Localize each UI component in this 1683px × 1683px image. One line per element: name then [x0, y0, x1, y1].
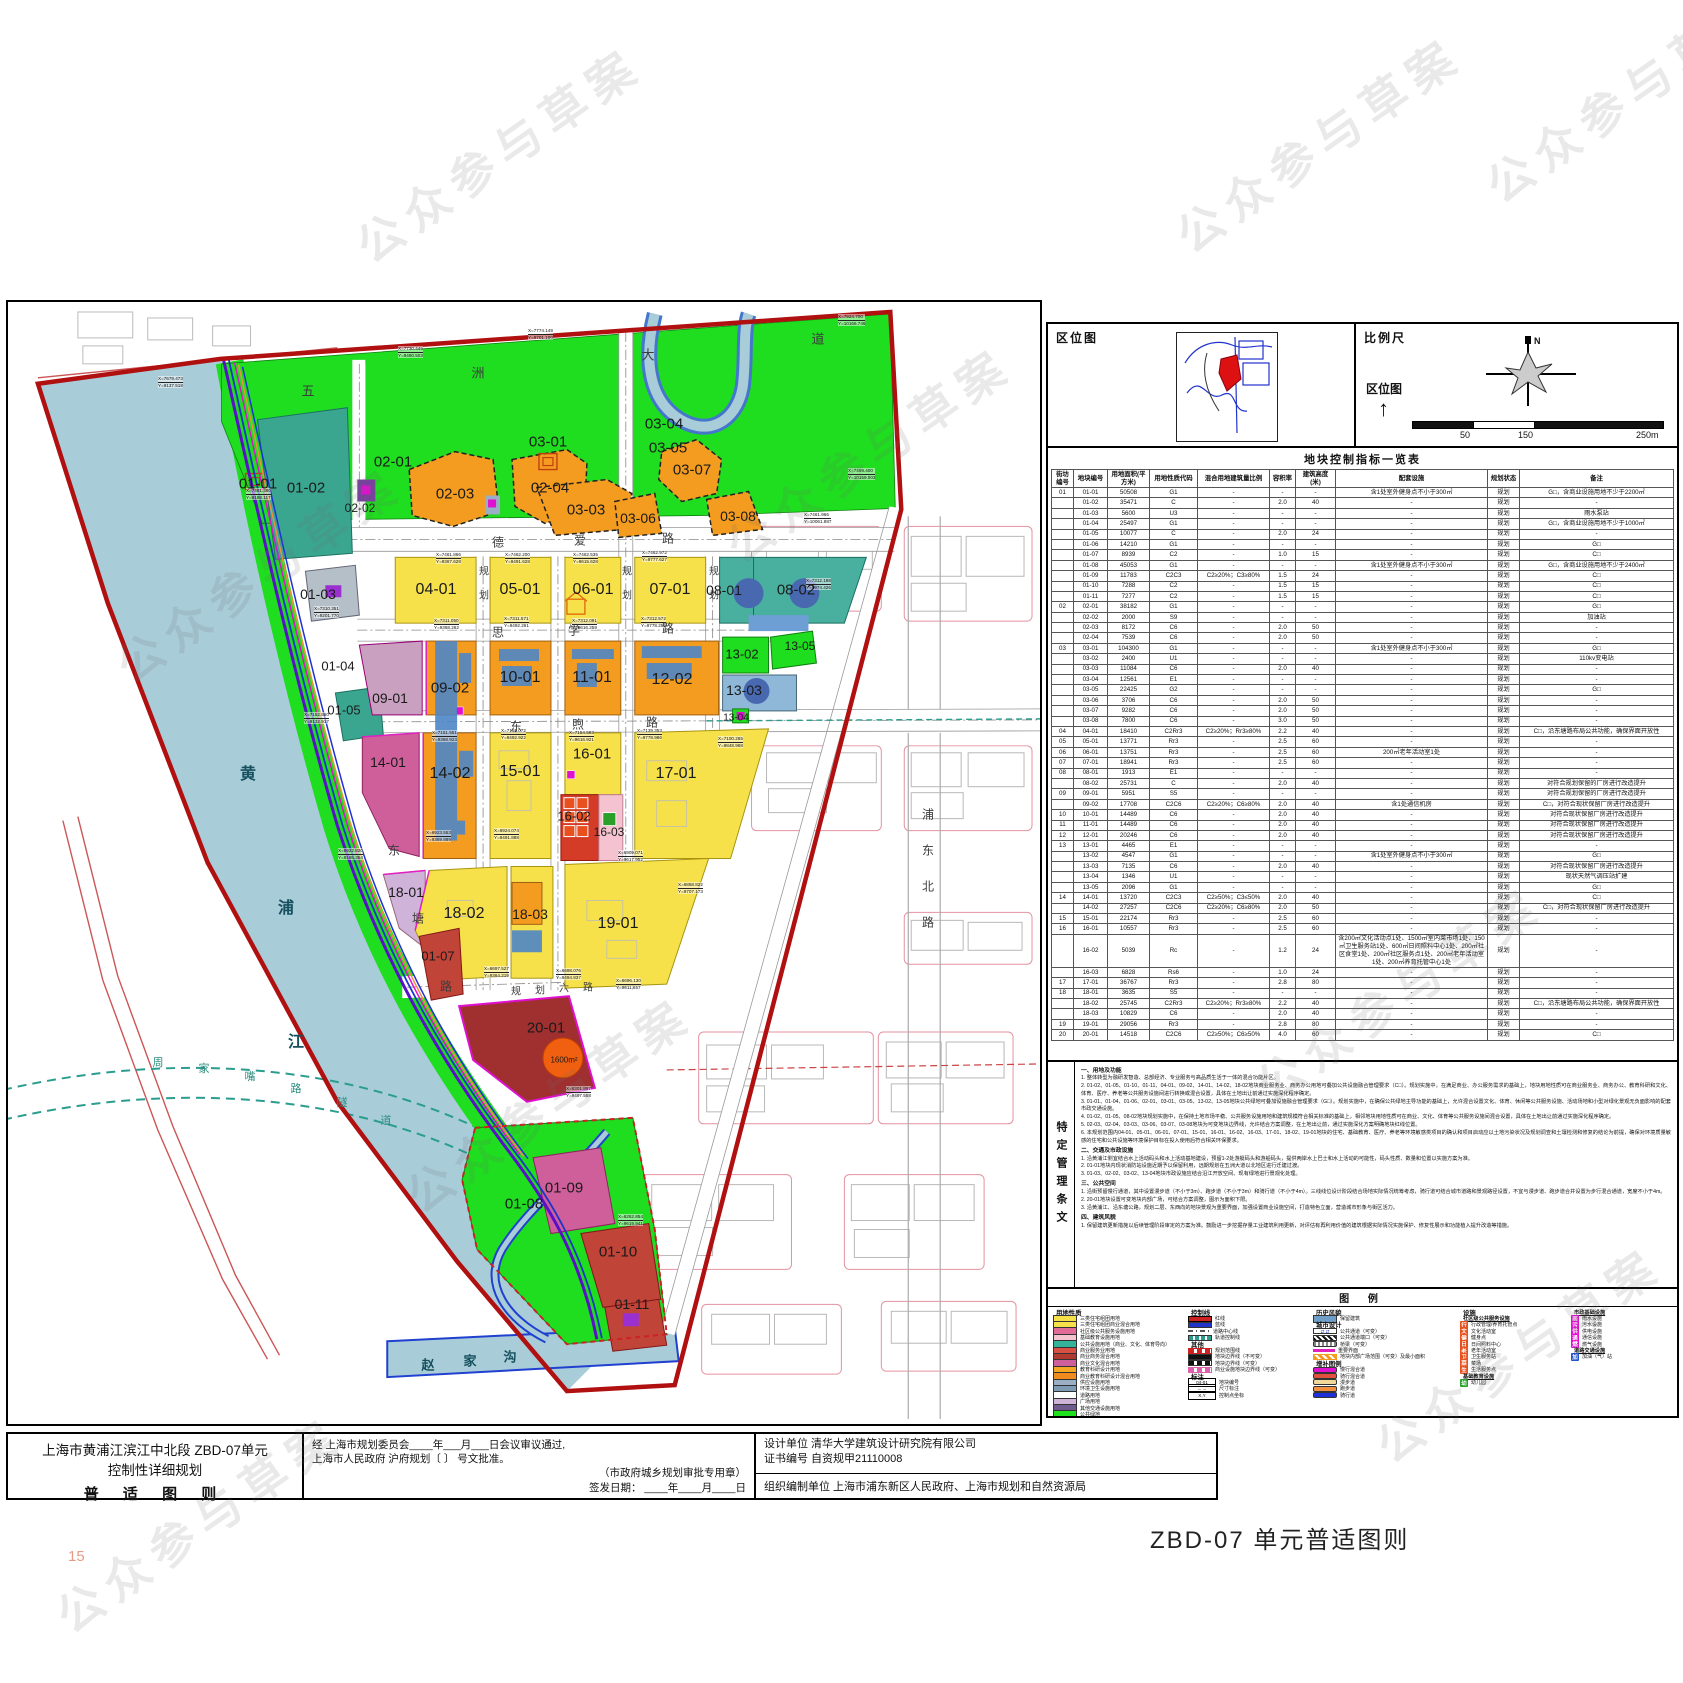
header-panels: 区位图 比例尺 N: [1046, 322, 1679, 448]
map-label: 20-01: [527, 1020, 565, 1037]
provisions-side-label: 特定管理条文: [1048, 1062, 1075, 1287]
special-provisions-section: 特定管理条文 一、用地及功能 1. 整体转型为融研发智造、总部经济、专业服务与高…: [1046, 1060, 1679, 1289]
map-label: 北: [922, 878, 934, 895]
legend-chip: [1313, 1341, 1337, 1347]
coordinate-label: X=6923.553Y=9369.889: [426, 830, 451, 842]
coordinate-label: X=6909.071Y=9617.952: [618, 850, 643, 862]
table-row: 2020-0114518 C2C6C2≥50%；C6≥50%4.0 60-规划 …: [1052, 1030, 1674, 1040]
location-minimap: [1176, 332, 1278, 442]
legend-chip: [1188, 1348, 1212, 1354]
coordinate-label: X=6698.076Y=9494.837: [556, 968, 581, 980]
coordinate-label: X=7311.571Y=9492.261: [504, 616, 529, 628]
right-column: 区位图 比例尺 N: [1046, 322, 1679, 1418]
map-label: 洲: [471, 363, 484, 382]
scale-tick: 250m: [1636, 430, 1659, 440]
map-label: 黄: [240, 760, 256, 784]
map-label: 东: [510, 718, 522, 735]
map-label: 01-03: [300, 586, 336, 602]
map-label: 路: [440, 978, 452, 995]
map-label: 路: [922, 914, 934, 931]
map-label: 爱: [574, 532, 586, 549]
table-row: 01-0911783 C2C3C2≥20%；C3≥80%1.5 24-规划 C□: [1052, 571, 1674, 581]
red-dashed-line: [667, 1064, 1040, 1070]
map-label: 01-09: [545, 1180, 583, 1197]
table-row: 0404-0118410 C2Rr3C2≥20%；Rr3≥80%2.2 40-规…: [1052, 726, 1674, 736]
map-label: 东: [922, 842, 934, 859]
table-row: 0101-0150508 G1-- -含1处室外健身点不小于300㎡规划 G□，…: [1052, 488, 1674, 498]
coordinate-label: X=6696.130Y=9611.657: [616, 978, 641, 990]
map-label: 16-03: [594, 825, 625, 839]
legend-chip: [1313, 1349, 1335, 1352]
map-label: 路: [662, 620, 674, 637]
table-row: 01-078939 C2-1.0 15-规划 C□: [1052, 550, 1674, 560]
coordinate-label: X=7679.473Y=9137.518: [158, 376, 183, 388]
legend-item: X,Y 控制点坐标: [1188, 1392, 1306, 1398]
map-label: 03-04: [645, 416, 683, 433]
provision-line: 4. 01-02、01-05、08-02地块规划实施中，在保持土地市场平稳、公共…: [1081, 1114, 1671, 1122]
table-row: 0303-01104300 G1-- -含1处室外健身点不小于300㎡规划 G□: [1052, 643, 1674, 653]
map-label: 01-08: [505, 1196, 543, 1213]
map-label: 浦: [922, 806, 934, 823]
map-label: 道: [381, 1112, 392, 1128]
map-label: 03-07: [673, 462, 711, 479]
coordinate-label: X=7100.265Y=9848.968: [718, 736, 743, 748]
scale-tick: 150: [1518, 430, 1533, 440]
table-row: 13-037135 C6-2.0 40-规划 对符合现状保留厂房进行改造提升: [1052, 862, 1674, 872]
approval-line: （市政府城乡规划审批专用章）: [312, 1466, 746, 1480]
map-label: 02-01: [374, 454, 412, 471]
map-label: 02-02: [345, 501, 376, 515]
legend-chip: ⇄ ⇄: [1313, 1328, 1337, 1334]
table-row: 13-052096 G1-- --规划 G□: [1052, 882, 1674, 892]
table-row: 1414-0113720 C2C3C2≥50%；C3≤50%2.0 40-规划 …: [1052, 893, 1674, 903]
table-row: 1919-0129056 Rr3-2.8 80-规划 -: [1052, 1019, 1674, 1029]
approval-cell: 经 上海市规划委员会____年___月___日会议审议通过, 上海市人民政府 沪…: [304, 1434, 756, 1498]
table-row: 09-0217708 C2C6C2≥20%；C6≥80%2.0 40含1处通信机…: [1052, 799, 1674, 809]
table-row: 01-0614210 G1-- --规划 G□: [1052, 539, 1674, 549]
legend-chip: [1053, 1417, 1077, 1418]
col-header: 混合用地建筑量比例: [1198, 470, 1270, 488]
legend-item: 加 加油（气）站: [1571, 1354, 1612, 1360]
provision-line: 2. 01-02、01-05、01-10、01-11、04-01、09-02、1…: [1081, 1083, 1671, 1099]
legend-chip: [1053, 1410, 1077, 1418]
project-title-cell: 上海市黄浦江滨江中北段 ZBD-07单元 控制性详细规划 普 适 图 则: [8, 1434, 304, 1498]
coordinate-label: X=7151.551Y=9368.923: [432, 730, 457, 742]
table-row: 1616-0110557 Rr3-2.5 60-规划 -: [1052, 924, 1674, 934]
table-row: 1010-0114489 C6-2.0 40-规划 对符合现状保留厂房进行改造提…: [1052, 810, 1674, 820]
map-label: 浦: [278, 894, 294, 918]
coordinate-label: X=7462.535Y=9615.628: [573, 552, 598, 564]
provision-line: 四、建筑风貌: [1081, 1214, 1671, 1223]
table-row: 03-063706 C6-2.0 50-规划 -: [1052, 695, 1674, 705]
map-label: 13-03: [726, 682, 762, 698]
map-label: 09-02: [431, 680, 469, 697]
coordinate-label: X=7461.866Y=9367.628: [436, 552, 461, 564]
table-row: 08-0225731 C-2.0 40-规划 对符合规划保留的厂房进行改造提升: [1052, 778, 1674, 788]
map-label: 16-02: [557, 809, 590, 824]
map-label: 大: [641, 345, 654, 364]
legend-chip: [1313, 1386, 1337, 1392]
map-label: 03-05: [649, 440, 687, 457]
legend-chip: X,Y: [1188, 1391, 1216, 1400]
map-label: 划: [709, 587, 719, 602]
table-row: 13-041346 U1-- --规划 现状天然气调压站扩建: [1052, 872, 1674, 882]
table-row: 1515-0122174 Rr3-2.5 60-规划 -: [1052, 914, 1674, 924]
table-row: 03-087800 C6-3.0 50-规划 -: [1052, 716, 1674, 726]
table-title: 地块控制指标一览表: [1048, 448, 1677, 469]
map-label: 德: [492, 534, 504, 551]
map-label: 18-03: [512, 906, 548, 922]
organizing-unit: 组织编制单位 上海市浦东新区人民政府、上海市规划和自然资源局: [756, 1474, 1216, 1498]
legend-urbandesign-column: 历史风貌 保留建筑 城市设计 ⇄: [1313, 1309, 1453, 1418]
map-label: 规: [709, 563, 719, 578]
col-header: 用地面积(平方米): [1108, 470, 1150, 488]
coordinate-label: X=6697.527Y=9364.219: [484, 966, 509, 978]
table-row: 03-022400 U1-- --规划 110kv变电站: [1052, 654, 1674, 664]
watermark-text: 公众参与草案: [1471, 0, 1683, 216]
legend-municipal-column: 市政基础设施 雨 雨水设施 污 污水设施: [1571, 1309, 1612, 1418]
map-label: 煦: [572, 716, 584, 733]
project-name-line2: 控制性详细规划: [8, 1459, 302, 1479]
north-arrow-icon: ↑: [1378, 396, 1389, 422]
legend-chip: 幼: [1460, 1379, 1468, 1387]
map-label: 16-01: [573, 746, 611, 763]
col-header: 配套设施: [1336, 470, 1488, 488]
table-row: 16-025039 Rc-1.2 24含200㎡文化活动点1处、1500㎡室内菜…: [1052, 934, 1674, 967]
map-label: 六: [559, 980, 569, 995]
legend-chip: [1313, 1379, 1337, 1385]
coordinate-label: X=7730.449Y=9490.503: [398, 346, 423, 358]
coordinate-label: X=7774.149Y=9701.100: [528, 328, 553, 340]
table-row: 03-0522425 G2-- --规划 G□: [1052, 685, 1674, 695]
col-header: 备注: [1520, 470, 1674, 488]
watermark-text: 公众参与草案: [341, 30, 654, 277]
legend-chip: [1188, 1354, 1212, 1360]
coordinate-label: X=7311.050Y=9368.262: [434, 618, 459, 630]
legend-chip: [1188, 1316, 1212, 1322]
map-label: 03-03: [567, 502, 605, 519]
project-name-line1: 上海市黄浦江滨江中北段 ZBD-07单元: [8, 1439, 302, 1459]
map-label: 东: [388, 842, 400, 859]
compass-rose: [1456, 334, 1606, 414]
coordinate-label: X=7461.966Y=10061.887: [804, 512, 831, 524]
table-row: 02-047539 C6-2.0 50-规划 -: [1052, 633, 1674, 643]
coordinate-label: X=7469.400Y=10159.003: [848, 468, 875, 480]
approval-line: 签发日期： ____年____月____日: [312, 1481, 746, 1495]
map-label: 18-02: [444, 905, 485, 923]
location-minimap-drawing: [1177, 333, 1277, 441]
table-row: 01-035600 U3-- --规划 雨水泵站: [1052, 508, 1674, 518]
col-header: 用地性质代码: [1150, 470, 1198, 488]
map-label: 规: [622, 563, 632, 578]
provisions-body: 一、用地及功能 1. 整体转型为融研发智造、总部经济、专业服务与高品质生活于一体…: [1075, 1062, 1677, 1287]
design-unit: 设计单位 清华大学建筑设计研究院有限公司: [764, 1437, 1208, 1452]
legend-chip: [1313, 1392, 1337, 1398]
map-label: 规: [511, 983, 521, 998]
table-row: 0909-015951 S5-- --规划 对符合规划保留的厂房进行改造提升: [1052, 789, 1674, 799]
provision-line: 三、公共空间: [1081, 1180, 1671, 1189]
plan-sheet: 公众参与草案 公众参与草案 公众参与草案 公众参与草案 公众参与草案 公众参与草…: [0, 0, 1683, 1683]
scale-sub-label: 区位图: [1366, 380, 1402, 397]
table-row: 16-036828 Rs6-1.0 24-规划 -: [1052, 967, 1674, 977]
provision-line: 二、交通及市政设施: [1081, 1147, 1671, 1156]
legend-chip: [1313, 1335, 1337, 1341]
sheet-type: 普 适 图 则: [8, 1483, 302, 1504]
map-label: 05-01: [500, 581, 541, 599]
coordinate-label: X=6858.822Y=9707.173: [678, 882, 703, 894]
planning-map-panel: X=7679.473Y=9137.518 X=7730.449Y=9490.50…: [6, 300, 1042, 1426]
table-row: 01-107288 C2-1.5 15-规划 C□: [1052, 581, 1674, 591]
coordinate-label: X=7152.560Y=9132.917: [304, 712, 329, 724]
provision-line: 2. 01-01地块内现状消防站设施近期予以保留利用，远期规划在五洲大道以北地区…: [1081, 1163, 1671, 1171]
provision-line: 1. 沿街预留慢行通道，其中设置漫步道（不小于3m）、跑步道（不小于3m）和骑行…: [1081, 1189, 1671, 1197]
map-label: 嘴: [245, 1068, 256, 1084]
table-row: 14-0227257 C2C6C2≥20%；C6≥80%2.0 50-规划 C□…: [1052, 903, 1674, 913]
map-label: 04-01: [416, 581, 457, 599]
control-indicator-section: 地块控制指标一览表 街坊编号 地块编号 用地面积(平方米) 用地性质代码 混合用…: [1046, 446, 1679, 1062]
watermark-text: 公众参与草案: [1161, 20, 1474, 267]
map-label: 01-07: [421, 949, 454, 964]
map-label: 沟: [503, 1347, 516, 1366]
coordinate-label: X=7310.351Y=9201.770: [314, 606, 339, 618]
table-row: 01-117277 C2-1.5 15-规划 C□: [1052, 591, 1674, 601]
location-panel-title: 区位图: [1056, 329, 1098, 346]
map-label: 02-04: [531, 480, 569, 497]
table-row: 1313-014465 E1-- --规划 -: [1052, 841, 1674, 851]
legend-chip: [1188, 1330, 1210, 1332]
table-row: 18-0310829 C6-2.0 40-规划 -: [1052, 1009, 1674, 1019]
map-label: 01-11: [615, 1296, 650, 1312]
design-unit-cell: 设计单位 清华大学建筑设计研究院有限公司 证书编号 自资规甲21110008 组…: [756, 1434, 1216, 1498]
map-label: 07-01: [650, 581, 691, 599]
legend-title: 图 例: [1048, 1289, 1677, 1307]
table-row: 1818-013635 S5-- --规划 -: [1052, 988, 1674, 998]
map-label: 03-01: [529, 434, 567, 451]
map-label: 10-01: [500, 669, 541, 687]
map-label: 01-01: [239, 476, 277, 493]
map-label: 15-01: [500, 763, 541, 781]
legend-chip: 加: [1571, 1353, 1579, 1361]
map-label: 06-01: [573, 581, 614, 599]
legend-item: 骑行道: [1313, 1392, 1453, 1398]
legend-chip: [1188, 1360, 1212, 1366]
table-row: 13-024547 G1-- -含1处室外健身点不小于300㎡规划 G□: [1052, 851, 1674, 861]
provision-line: 6. 本规划范围内04-01、05-01、06-01、07-01、15-01、1…: [1081, 1130, 1671, 1146]
map-label: 家: [463, 1351, 476, 1370]
scale-panel-title: 比例尺: [1364, 329, 1406, 346]
legend-chip: [1313, 1373, 1337, 1379]
map-label: 14-02: [430, 765, 471, 783]
legend-item: 公共绿地: [1053, 1411, 1181, 1417]
table-row: 02-022000 S9-- --规划 加油站: [1052, 612, 1674, 622]
legend-item: 幼 幼儿园: [1460, 1379, 1564, 1385]
table-row: 0505-0113771 Rr3-2.5 60-规划 -: [1052, 737, 1674, 747]
provision-line: 3. 01-03、02-02、03-02、13-04地块市政设施应结合沿江开放空…: [1081, 1171, 1671, 1179]
approval-line: 上海市人民政府 沪府规划〔 〕 号文批准。: [312, 1452, 746, 1466]
legend-chip: [1188, 1322, 1212, 1328]
map-label: 规: [479, 563, 489, 578]
provision-line: 一、用地及功能: [1081, 1067, 1671, 1076]
sheet-code: ZBD-07 单元普适图则: [1150, 1520, 1409, 1555]
table-row: 01-0845053 G1-- -含1处室外健身点不小于300㎡规划 G□，含商…: [1052, 560, 1674, 570]
map-label: 08-02: [777, 582, 815, 599]
col-header: 规划状态: [1488, 470, 1520, 488]
map-label: 01-04: [321, 659, 354, 674]
table-row: 1717-0136767 Rr3-2.8 80-规划 -: [1052, 978, 1674, 988]
map-label: 周: [153, 1054, 164, 1070]
scale-panel: 比例尺 N 区位图 ↑ 50 150 250m: [1356, 324, 1677, 446]
map-label: 赵: [421, 1355, 434, 1374]
coordinate-label: X=7924.700Y=10166.746: [838, 314, 865, 326]
col-header: 地块编号: [1074, 470, 1108, 488]
coordinate-label: X=6922.820Y=9195.354: [338, 848, 363, 860]
legend-lines-column: 控制线 红线 蓝线: [1188, 1309, 1306, 1418]
map-label: 13-04: [723, 713, 749, 724]
coordinate-label: X=6924.074Y=9491.888: [494, 828, 519, 840]
control-indicator-table: 街坊编号 地块编号 用地面积(平方米) 用地性质代码 混合用地建筑量比例 容积率…: [1051, 469, 1674, 1041]
coordinate-label: X=7462.972Y=9777.627: [642, 550, 667, 562]
table-row: 0707-0118941 Rr3-2.5 60-规划 -: [1052, 758, 1674, 768]
table-row: 0808-011913 E1-- --规划 -: [1052, 768, 1674, 778]
table-row: 01-0510077 C-2.0 24-规划 -: [1052, 529, 1674, 539]
coordinate-label: X=6301.897Y=9497.558: [566, 1086, 591, 1098]
title-block: 上海市黄浦江滨江中北段 ZBD-07单元 控制性详细规划 普 适 图 则 经 上…: [6, 1432, 1218, 1500]
map-label: 01-05: [327, 703, 360, 718]
provision-line: 3. 01-01、01-04、01-06、02-01、03-01、03-05、1…: [1081, 1099, 1671, 1115]
table-row: 01-0425497 G1-- --规划 G□，含商业设施用地不少于1000㎡: [1052, 519, 1674, 529]
map-label: 路: [291, 1080, 302, 1096]
table-row: 1111-0114489 C6-2.0 40-规划 对符合现状保留厂房进行改造提…: [1052, 820, 1674, 830]
scale-bar: [1412, 421, 1664, 429]
map-label: 09-01: [372, 690, 408, 706]
map-label: 13-02: [725, 647, 758, 662]
legend-chip: [1313, 1367, 1337, 1373]
coordinate-label: X=6262.854Y=9619.941: [618, 1214, 643, 1226]
map-label: 12-02: [652, 671, 693, 689]
map-label: 江: [288, 1028, 304, 1052]
provision-line: 5. 02-03、02-04、03-03、03-06、03-07、03-08地块…: [1081, 1122, 1671, 1130]
map-label: 思: [492, 624, 504, 641]
map-label: 1600m²: [550, 1056, 577, 1065]
table-header-row: 街坊编号 地块编号 用地面积(平方米) 用地性质代码 混合用地建筑量比例 容积率…: [1052, 470, 1674, 488]
map-label: 18-01: [388, 884, 424, 900]
map-label: 路: [662, 530, 674, 547]
col-header: 容积率: [1270, 470, 1296, 488]
certificate-number: 证书编号 自资规甲21110008: [764, 1452, 1208, 1467]
map-label: 划: [479, 587, 489, 602]
table-row: 18-0225745 C2Rr3C2≥20%；Rr3≥80%2.2 40-规划 …: [1052, 998, 1674, 1008]
map-label: 道: [811, 329, 824, 348]
map-label: 家: [199, 1060, 210, 1076]
map-label: 五: [301, 381, 314, 400]
approval-line: 经 上海市规划委员会____年___月___日会议审议通过,: [312, 1438, 746, 1452]
legend-section: 图 例 用地性质 三类住宅组团用地: [1046, 1287, 1679, 1418]
map-label: 13-05: [785, 639, 816, 653]
scale-tick: 50: [1460, 430, 1470, 440]
coordinate-label: X=7462.200Y=9491.628: [505, 552, 530, 564]
provision-line: 1. 整体转型为融研发智造、总部经济、专业服务与高品质生活于一体的混合功能片区。: [1081, 1075, 1671, 1083]
page-number: 15: [68, 1548, 85, 1565]
provision-line: 3. 沿黄浦江、沿东塘公路，规划二层、东西向的地块景观为重要界面，加强设置商业设…: [1081, 1205, 1671, 1213]
table-row: 1212-0120246 C6-2.0 40-规划 对符合现状保留厂房进行改造提…: [1052, 830, 1674, 840]
map-label: 隧: [337, 1094, 348, 1110]
col-header: 建筑高度 (米): [1296, 470, 1336, 488]
table-row: 02-038172 C6-2.0 50-规划 -: [1052, 623, 1674, 633]
city-road-vertical: [908, 516, 940, 1419]
location-map-panel: 区位图: [1048, 324, 1356, 446]
map-label: 03-06: [620, 510, 656, 526]
table-row: 0202-0138182 G1-- --规划 G□: [1052, 602, 1674, 612]
legend-facilities-column: 设施 社区级公共服务设施 行 行政管理/养育托管点: [1460, 1309, 1564, 1418]
table-row: 01-0235471 C-2.0 40-规划 -: [1052, 498, 1674, 508]
planning-map-drawing: [8, 302, 1040, 1424]
map-label: 01-10: [599, 1244, 637, 1261]
map-label: 01-02: [287, 480, 325, 497]
map-label: 11-01: [572, 669, 612, 687]
map-label: 02-03: [436, 486, 474, 503]
map-label: 划: [535, 982, 545, 997]
table-row: 03-079282 C6-2.0 50-规划 -: [1052, 706, 1674, 716]
map-label: 划: [622, 587, 632, 602]
map-label: 路: [646, 714, 658, 731]
map-label: 19-01: [598, 915, 639, 933]
map-label: 14-01: [370, 754, 406, 770]
map-label: 塘: [412, 910, 424, 927]
legend-landuse-column: 用地性质 三类住宅组团用地 三类住宅组团商业混合用地: [1053, 1309, 1181, 1418]
col-header: 街坊编号: [1052, 470, 1074, 488]
table-row: 03-0412561 E1-- --规划 -: [1052, 675, 1674, 685]
map-label: 03-08: [720, 508, 756, 524]
map-label: 17-01: [656, 765, 697, 783]
city-buildings-topleft: [78, 312, 251, 364]
provision-line: 1. 保留建筑更新措施以后续管理阶段审定的方案为准。鼓励进一步挖掘存量工业建筑利…: [1081, 1223, 1671, 1231]
map-label: 学: [568, 622, 580, 639]
table-row: 0606-0113751 Rr3-2.5 60200㎡老年活动室1处规划 -: [1052, 747, 1674, 757]
provision-line: 2. 20-01地块设置可变地块内部广场，可结合方案调整，图示为面积下限。: [1081, 1197, 1671, 1205]
map-label: 路: [583, 979, 593, 994]
table-row: 03-0311084 C6-2.0 40-规划 -: [1052, 664, 1674, 674]
